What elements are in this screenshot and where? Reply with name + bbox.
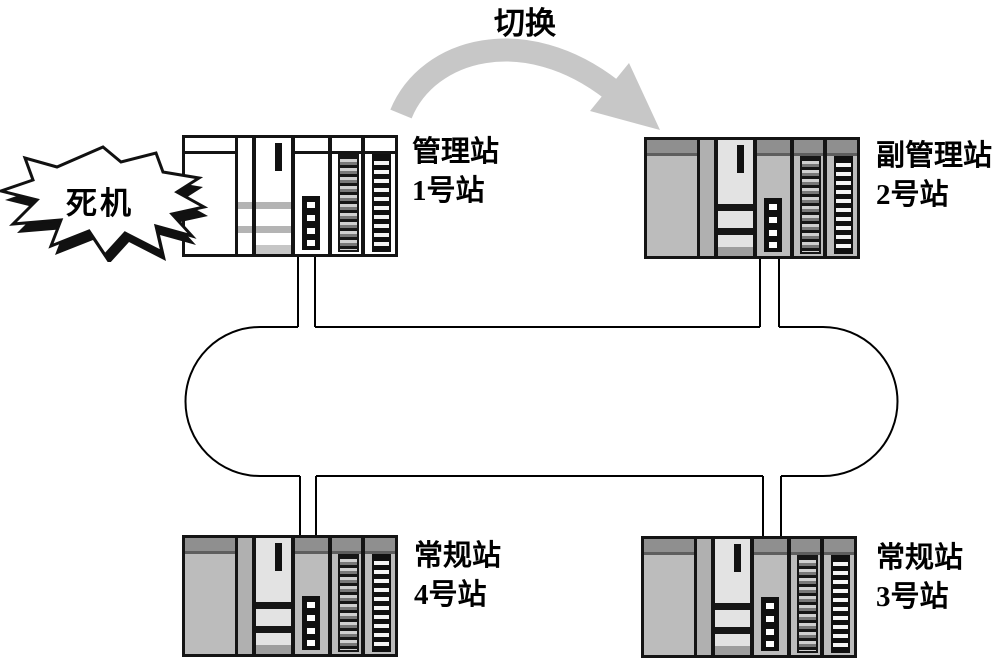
cpu-slot (737, 145, 744, 173)
io-terminal-strip (338, 154, 359, 252)
network-connector (761, 597, 779, 651)
station-3-label: 常规站 3号站 (876, 539, 963, 617)
power-module-column (697, 539, 711, 655)
network-connector (764, 198, 782, 252)
io-terminal-strip (797, 555, 818, 653)
station-1-number: 1号站 (412, 172, 499, 211)
cpu-module (256, 538, 291, 654)
station-4-plc-rack (182, 535, 398, 657)
cpu-slot (275, 143, 282, 171)
io-terminal-strip (831, 555, 850, 653)
io-terminal-strip (338, 554, 359, 652)
power-module-column (238, 538, 252, 654)
ring-bus (186, 257, 898, 536)
station-3-number: 3号站 (876, 578, 963, 617)
cpu-slot (734, 544, 741, 572)
cpu-band (715, 627, 750, 634)
cpu-bottom-strip (256, 645, 291, 654)
cpu-band (256, 602, 291, 609)
station-2-label: 副管理站 2号站 (876, 137, 992, 215)
switchover-label: 切换 (494, 0, 556, 43)
plc-ring-network-diagram: 死机 切换 管理站 1号站 副管理站 2号站 常规站 3号站 常规站 4号站 (0, 0, 994, 658)
io-terminal-strip (800, 156, 821, 254)
station-2-plc-rack (644, 137, 860, 259)
cpu-band (238, 202, 291, 209)
crash-label: 死机 (66, 178, 134, 223)
io-terminal-strip (372, 554, 391, 652)
cpu-module (715, 539, 750, 655)
network-connector (302, 596, 320, 650)
cpu-band (718, 204, 753, 211)
cpu-bottom-strip (256, 245, 291, 254)
station-4-role: 常规站 (414, 537, 501, 576)
cpu-bottom-strip (718, 247, 753, 256)
io-modules-header (754, 539, 854, 555)
io-terminal-strip (372, 154, 391, 252)
cpu-module (256, 138, 291, 254)
power-module-column (238, 138, 252, 254)
station-2-number: 2号站 (876, 176, 992, 215)
station-1-role: 管理站 (412, 133, 499, 172)
io-terminal-strip (834, 156, 853, 254)
io-modules-header (757, 140, 857, 156)
io-modules-header (295, 138, 395, 154)
cpu-band (715, 603, 750, 610)
station-3-plc-rack (641, 536, 857, 658)
station-4-number: 4号站 (414, 576, 501, 615)
drop-cables (298, 257, 781, 536)
cpu-band (256, 626, 291, 633)
cpu-band (238, 226, 291, 233)
power-module-column (700, 140, 714, 256)
io-modules-header (295, 538, 395, 554)
cpu-band (718, 228, 753, 235)
cpu-bottom-strip (715, 646, 750, 655)
station-1-label: 管理站 1号站 (412, 133, 499, 211)
station-3-role: 常规站 (876, 539, 963, 578)
cpu-slot (275, 543, 282, 571)
station-2-role: 副管理站 (876, 137, 992, 176)
switchover-arrow (401, 50, 660, 130)
cpu-module (718, 140, 753, 256)
station-4-label: 常规站 4号站 (414, 537, 501, 615)
network-connector (302, 196, 320, 250)
